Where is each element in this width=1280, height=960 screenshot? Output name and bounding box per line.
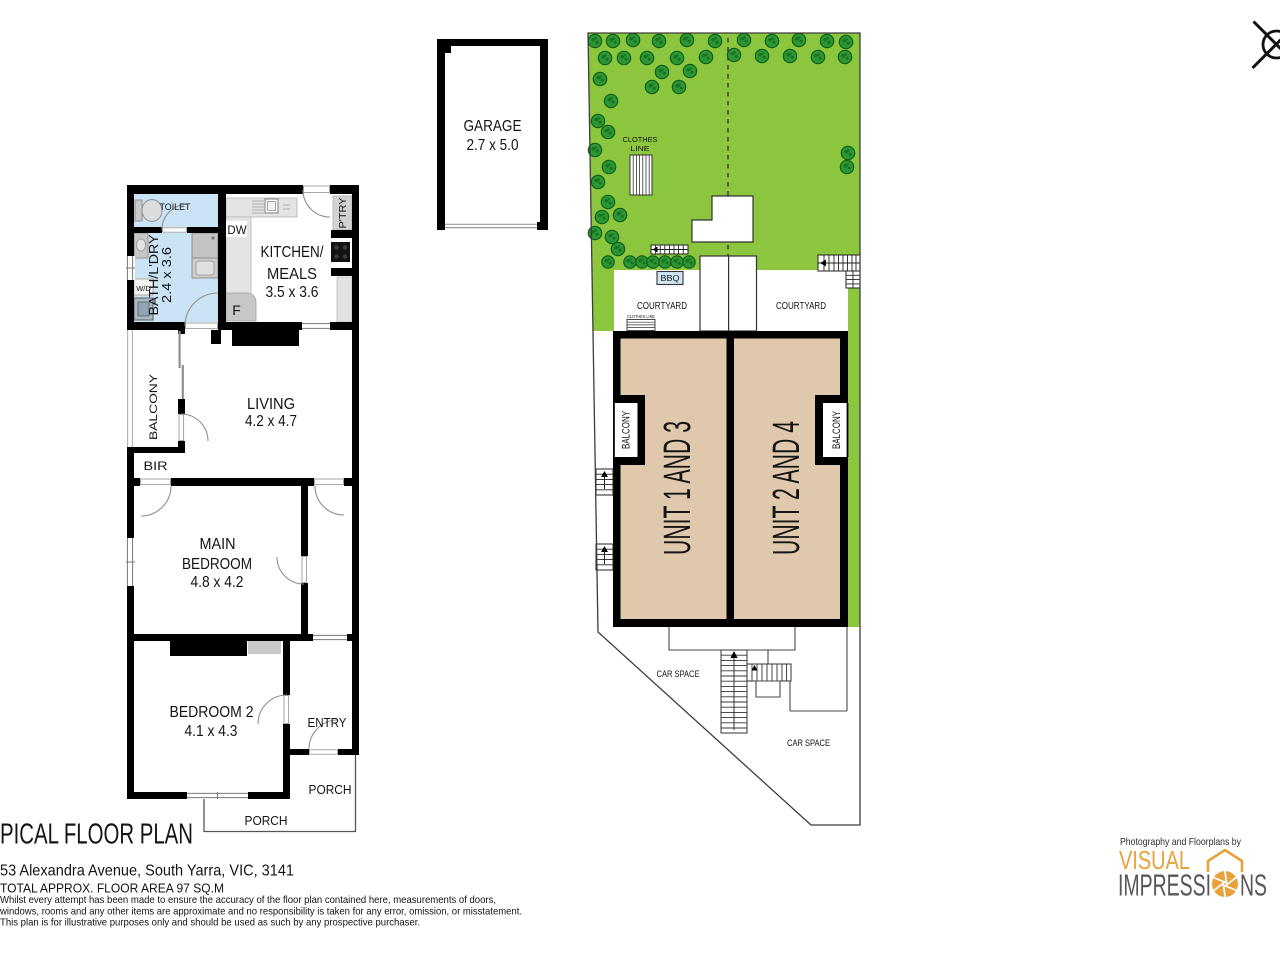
svg-text:4.1 x 4.3: 4.1 x 4.3: [185, 723, 238, 740]
svg-text:BEDROOM: BEDROOM: [182, 556, 252, 573]
svg-text:UNIT 2 AND 4: UNIT 2 AND 4: [766, 421, 808, 555]
svg-text:53 Alexandra Avenue, South Yar: 53 Alexandra Avenue, South Yarra, VIC, 3…: [0, 863, 294, 880]
svg-text:4.2 x 4.7: 4.2 x 4.7: [245, 413, 297, 430]
svg-text:windows, rooms and any other i: windows, rooms and any other items are a…: [0, 906, 522, 917]
svg-text:DW: DW: [227, 225, 246, 237]
svg-text:KITCHEN/: KITCHEN/: [261, 244, 325, 261]
svg-text:LIVING: LIVING: [247, 396, 295, 413]
svg-text:This plan is for illustrative: This plan is for illustrative purposes o…: [0, 918, 420, 929]
svg-text:4.8 x 4.2: 4.8 x 4.2: [191, 574, 244, 591]
svg-text:CLOTHES LINE: CLOTHES LINE: [627, 314, 655, 319]
svg-text:UNIT 1 AND 3: UNIT 1 AND 3: [657, 421, 699, 555]
svg-text:MEALS: MEALS: [267, 266, 317, 283]
svg-text:CLOTHES: CLOTHES: [623, 135, 658, 144]
svg-text:COURTYARD: COURTYARD: [637, 301, 687, 312]
svg-text:TOILET: TOILET: [160, 202, 191, 213]
svg-text:2.7 x 5.0: 2.7 x 5.0: [467, 137, 519, 154]
svg-text:BBQ: BBQ: [661, 273, 680, 283]
svg-text:NS: NS: [1240, 868, 1267, 903]
svg-text:IMPRESSI: IMPRESSI: [1118, 868, 1211, 903]
svg-text:GARAGE: GARAGE: [464, 118, 522, 135]
svg-text:CAR SPACE: CAR SPACE: [787, 738, 830, 748]
svg-text:3.5 x 3.6: 3.5 x 3.6: [266, 284, 319, 301]
svg-text:PORCH: PORCH: [309, 783, 352, 797]
svg-text:BALCONY: BALCONY: [148, 373, 160, 440]
svg-text:TOTAL APPROX. FLOOR AREA 97 SQ: TOTAL APPROX. FLOOR AREA 97 SQ.M: [0, 881, 224, 896]
svg-text:P'TRY: P'TRY: [338, 197, 349, 228]
svg-text:BEDROOM 2: BEDROOM 2: [170, 704, 254, 721]
svg-text:ENTRY: ENTRY: [308, 716, 348, 730]
svg-text:Whilst every attempt has been: Whilst every attempt has been made to en…: [0, 895, 496, 906]
svg-text:2.4 x 3.6: 2.4 x 3.6: [160, 247, 174, 303]
svg-text:BATH/L'DRY: BATH/L'DRY: [147, 234, 161, 316]
svg-text:COURTYARD: COURTYARD: [776, 301, 826, 312]
svg-text:PICAL FLOOR PLAN: PICAL FLOOR PLAN: [0, 819, 193, 851]
svg-text:PORCH: PORCH: [245, 814, 288, 828]
svg-text:F: F: [232, 302, 241, 318]
svg-text:CAR SPACE: CAR SPACE: [657, 669, 700, 679]
svg-text:BALCONY: BALCONY: [621, 411, 633, 449]
svg-text:BALCONY: BALCONY: [831, 411, 843, 449]
svg-text:MAIN: MAIN: [200, 536, 236, 553]
svg-text:LINE: LINE: [631, 144, 650, 153]
svg-text:BIR: BIR: [144, 461, 168, 473]
